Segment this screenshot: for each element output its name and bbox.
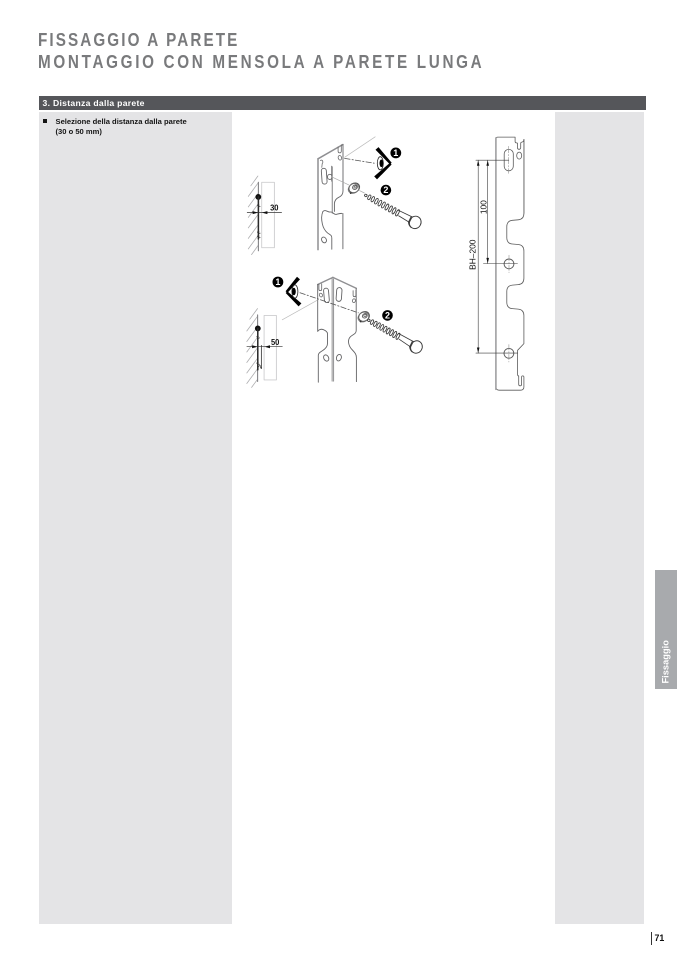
svg-text:100: 100 (478, 200, 488, 214)
svg-text:BH–200: BH–200 (467, 239, 477, 270)
svg-text:1: 1 (393, 148, 398, 158)
svg-text:2: 2 (385, 310, 390, 320)
svg-text:2: 2 (383, 185, 388, 195)
svg-text:1: 1 (275, 277, 280, 287)
svg-text:30: 30 (270, 203, 279, 212)
svg-text:50: 50 (271, 338, 280, 347)
